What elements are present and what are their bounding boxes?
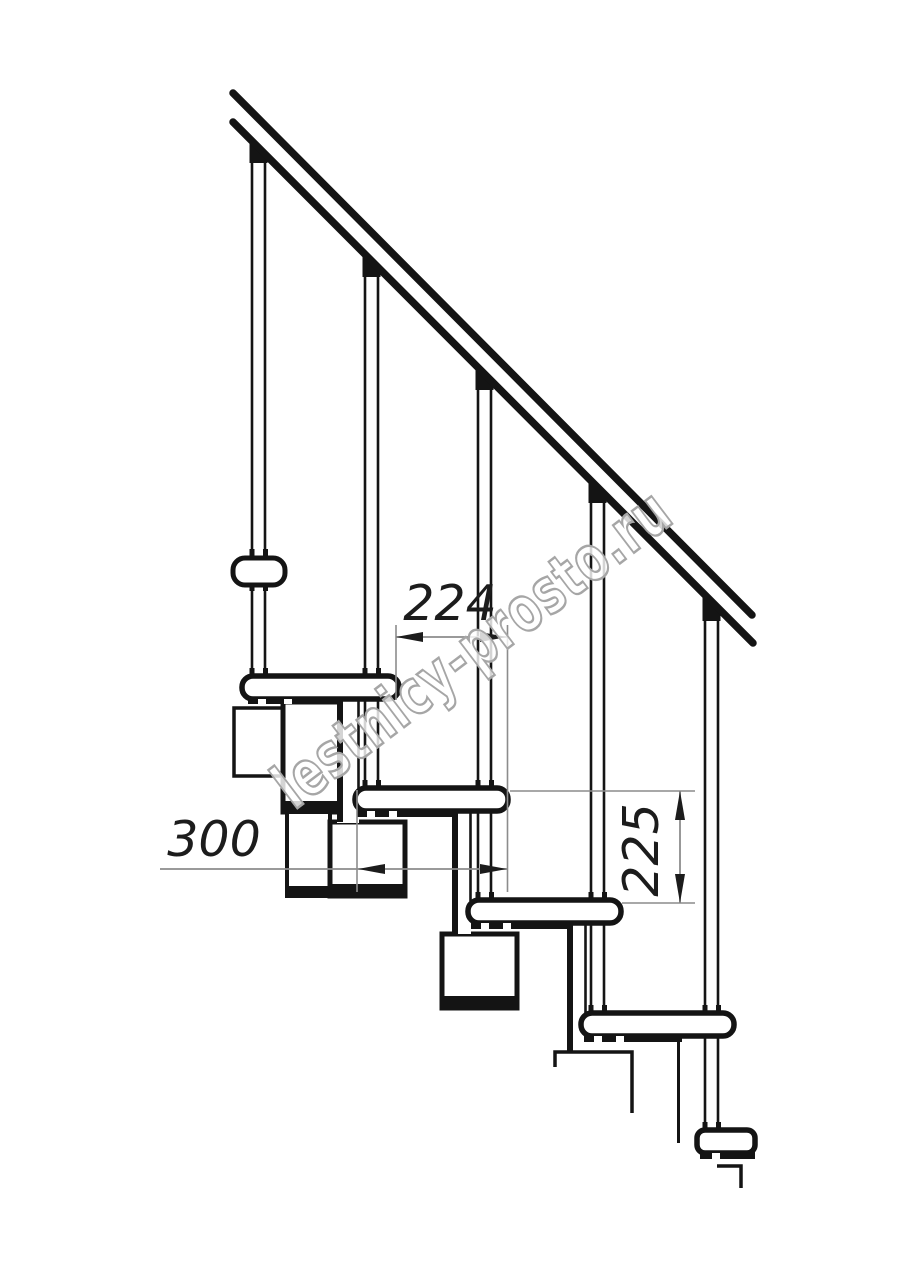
- watermark-text: lestnicy-prosto.ru: [259, 474, 685, 822]
- tread-b: [355, 788, 508, 811]
- handrail: [233, 93, 753, 643]
- staircase-side-view-drawing: 224 300 225 lestnicy-prosto.ru: [0, 0, 914, 1280]
- spine-module-c-base: [442, 996, 517, 1008]
- baluster-5: [705, 612, 718, 1131]
- ghost-outline-module-d: [555, 1052, 632, 1113]
- dim-arrow-left-icon: [396, 632, 423, 642]
- staircase-drawing-page: 224 300 225 lestnicy-prosto.ru: [0, 0, 914, 1280]
- dim-300-label: 300: [167, 811, 261, 868]
- dim-225-label: 225: [613, 803, 670, 897]
- dim-arrow-up-icon: [675, 791, 685, 820]
- dim-arrow-right-icon: [480, 864, 507, 874]
- tread-e: [697, 1130, 755, 1153]
- tread-d: [581, 1013, 734, 1036]
- spine-module-b-base: [330, 884, 405, 896]
- ghost-outline-step-e: [717, 1166, 741, 1188]
- tread-c: [468, 900, 621, 923]
- baluster-1: [252, 158, 265, 677]
- handrail-bottom-line: [233, 122, 753, 643]
- tread-bracket-upper-flight: [233, 558, 285, 585]
- landing-box-2: [287, 812, 330, 896]
- dim-arrow-down-icon: [675, 874, 685, 903]
